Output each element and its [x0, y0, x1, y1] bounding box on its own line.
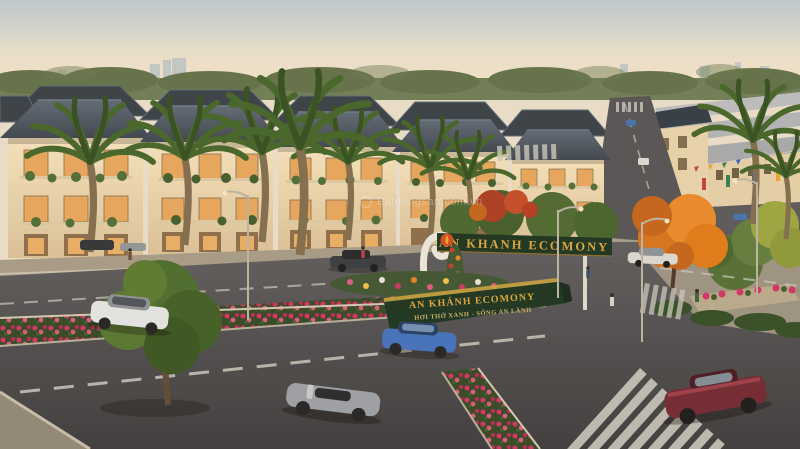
render-scene: AN KHANH ECOMONY AN KHÁNH ECOMONY HƠI TH… [0, 0, 800, 449]
watermark-logo-icon [360, 196, 372, 208]
scene-canvas: AN KHANH ECOMONY AN KHÁNH ECOMONY HƠI TH… [0, 0, 800, 449]
watermark-text: Batdongsan.com.vn [377, 196, 483, 208]
sunlight-overlay [0, 0, 800, 449]
watermark: Batdongsan.com.vn [360, 196, 483, 208]
